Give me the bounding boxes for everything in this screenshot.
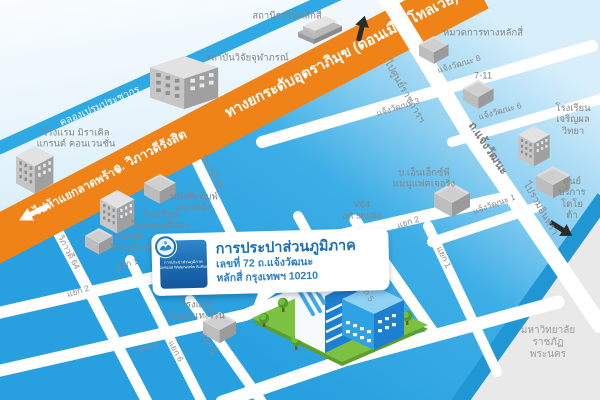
- location-map: คลองเปรมประชากร ทางยกระดับอุตราภิมุข (ดอ…: [0, 0, 600, 400]
- callout-text: การประปาส่วนภูมิภาค เลขที่ 72 ถ.แจ้งวัฒน…: [215, 237, 356, 286]
- chulabhorn-label: สถาบันวิจัยจุฬาภรณ์: [205, 52, 288, 63]
- v64-studio-label: V64 art studio: [342, 200, 381, 223]
- pwa-logo: การประปาส่วนภูมิภาค Provincial Waterwork…: [159, 240, 207, 289]
- pwa-logo-emblem-icon: [151, 233, 180, 262]
- seven-eleven-label: 7-11: [474, 70, 492, 81]
- railway-station-label: สถานีรถไฟหลักสี่: [252, 10, 321, 21]
- market-label: ตลาด วิภาวดี-64: [110, 232, 152, 255]
- charoenphon-school-label: โรงเรียน เจริญผลวิทยา: [555, 103, 590, 137]
- university-label: มหาวิทยาลัยราชภัฏ พระนคร: [521, 325, 575, 361]
- nxp-label: บ.เอ็นเอ็กซ์พี แมนูแฟคเจอริ่ง: [393, 168, 455, 191]
- phatai-school-label: โรงเรียน ไผทอุดมศึกษา: [132, 210, 190, 233]
- toyota-label: ศูนย์บริการ โตโยต้า: [558, 176, 586, 222]
- pwa-callout: การประปาส่วนภูมิภาค Provincial Waterwork…: [151, 228, 390, 296]
- charoenphon-school-icon: [518, 126, 550, 166]
- highway-division-label: หมวดการทางหลักสี่: [443, 27, 523, 38]
- miracle-hotel-label: โรงแรม มิราเคิล แกรนด์ คอนเวนชั่น: [37, 128, 116, 151]
- callout-address-line2: หลักสี่ กรุงเทพฯ 10210: [216, 269, 357, 286]
- louis-hotel-label: โรงแรม หลุยส์แทเวิร์น: [169, 300, 225, 323]
